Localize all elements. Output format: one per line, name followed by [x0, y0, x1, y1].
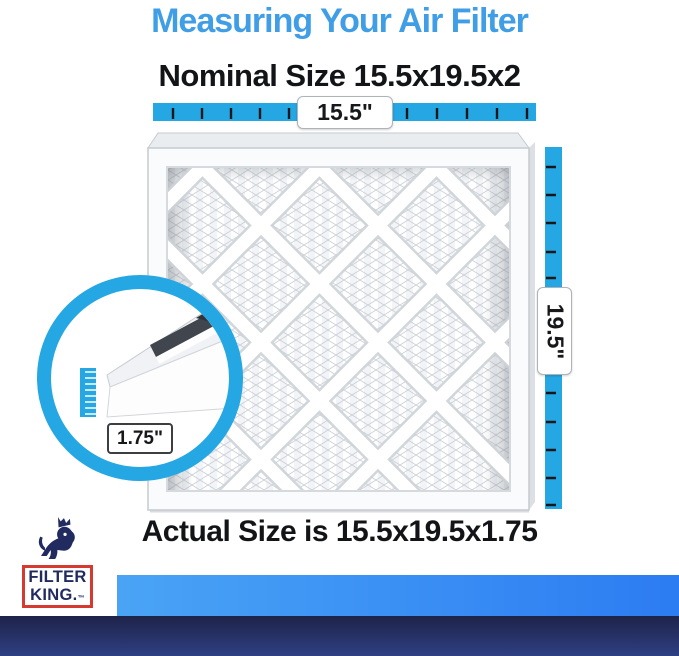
- logo-line-king: KING.™: [30, 587, 85, 604]
- depth-measurement-label: 1.75": [107, 423, 173, 454]
- infographic-canvas: Measuring Your Air Filter Nominal Size 1…: [0, 0, 679, 656]
- footer-navy-bar: [0, 616, 679, 656]
- lion-crown-icon: [32, 516, 84, 568]
- logo-wordmark-box: FILTER KING.™: [22, 565, 93, 608]
- height-measurement-text: 19.5": [541, 303, 568, 359]
- mini-depth-ruler: [80, 368, 96, 417]
- footer-accent-bar: [117, 575, 679, 616]
- width-measurement-label: 15.5": [297, 96, 393, 129]
- height-measurement-label: 19.5": [537, 287, 572, 375]
- trademark-symbol: ™: [78, 595, 85, 602]
- logo-line-filter: FILTER: [28, 569, 86, 586]
- filter-king-logo: FILTER KING.™: [18, 512, 128, 622]
